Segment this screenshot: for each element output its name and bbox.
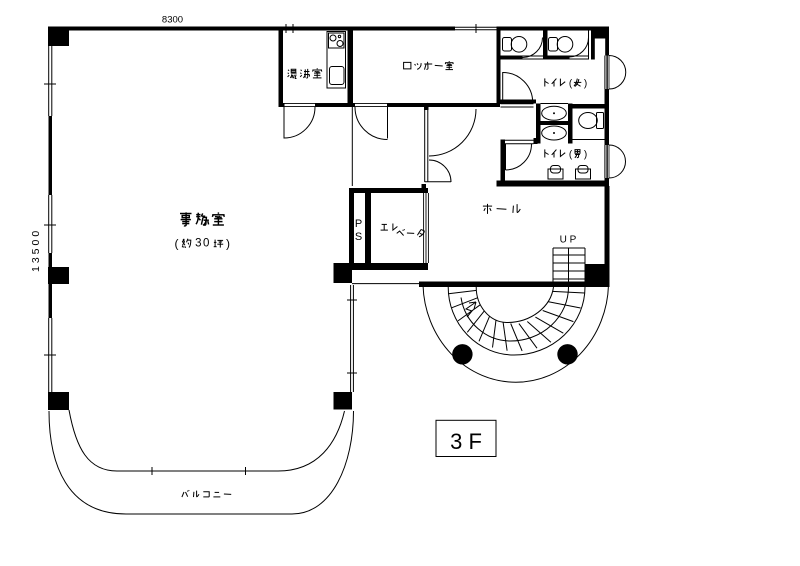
svg-text:(: ( [569,150,573,161]
svg-text:8300: 8300 [162,15,183,26]
svg-text:(: ( [569,79,573,90]
svg-text:30: 30 [195,238,211,250]
svg-text:P: P [355,218,362,230]
svg-text:13500: 13500 [30,228,42,272]
svg-text:U P: U P [560,235,577,246]
svg-text:): ) [226,237,230,251]
svg-text:S: S [355,231,362,243]
svg-text:(: ( [175,237,179,251]
svg-text:): ) [584,150,587,161]
svg-text:3 F: 3 F [450,429,482,454]
svg-text:): ) [584,79,587,90]
